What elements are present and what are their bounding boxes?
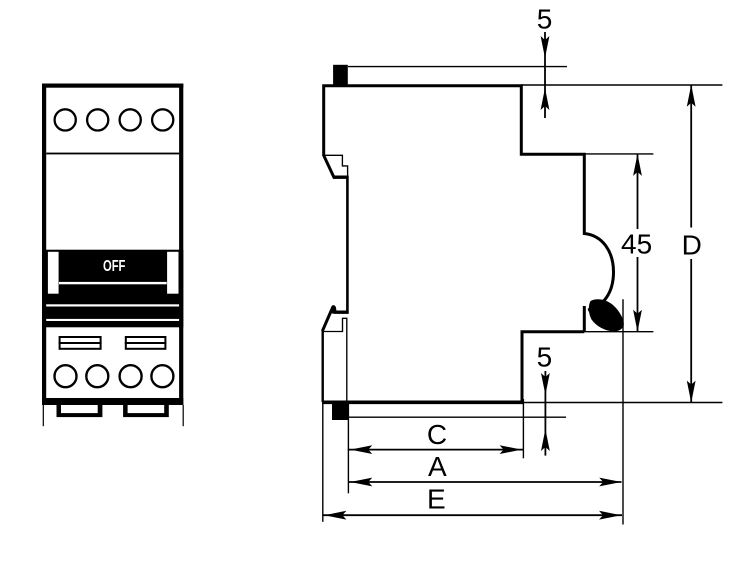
svg-text:45: 45 [621,229,652,260]
svg-text:C: C [427,419,447,450]
svg-text:E: E [427,483,446,514]
svg-text:D: D [682,230,702,261]
svg-text:A: A [428,451,447,482]
svg-text:5: 5 [537,3,553,34]
svg-text:OFF: OFF [103,256,125,275]
svg-text:5: 5 [537,341,553,372]
